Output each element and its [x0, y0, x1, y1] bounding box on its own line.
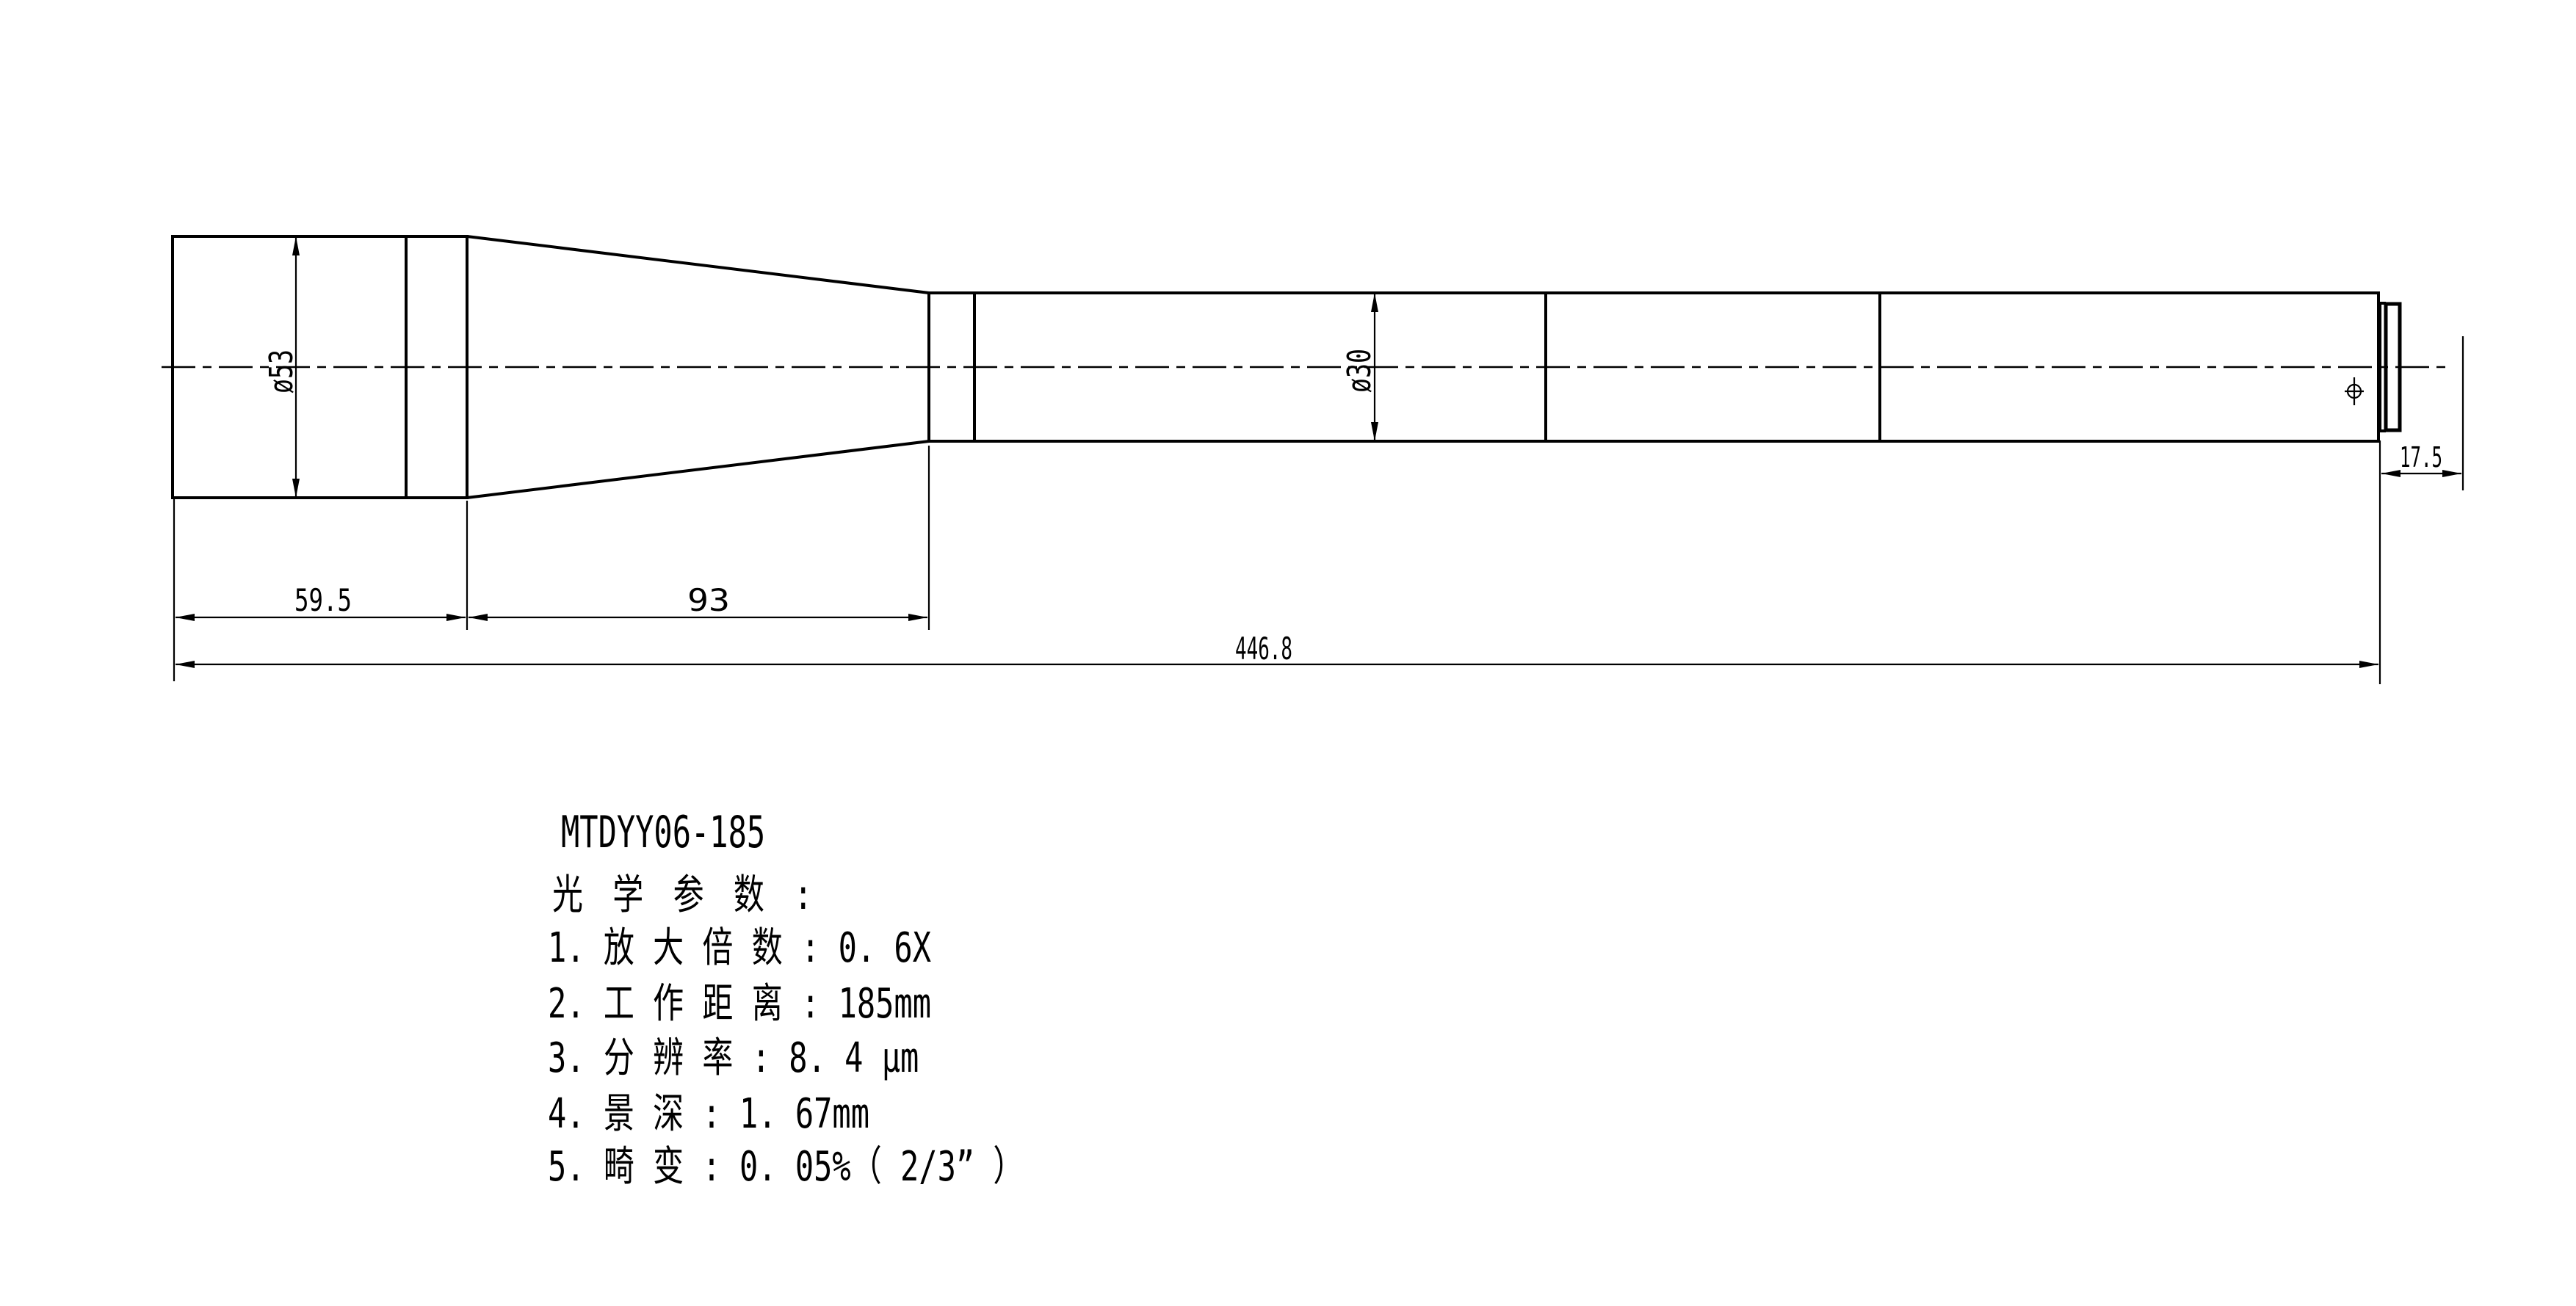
arrowhead — [468, 614, 488, 621]
arrowhead — [1371, 293, 1378, 312]
dimension-labels: ø53 ø30 59.5 93 446.8 17.5 — [263, 349, 2442, 667]
arrowhead — [292, 236, 300, 255]
spec-heading: 光 学 参 数 : — [552, 875, 818, 916]
spec-line-resolution: 3. 分 辨 率 : 8. 4 μm — [548, 1038, 919, 1079]
spec-line-magnification: 1. 放 大 倍 数 : 0. 6X — [548, 928, 931, 969]
dim-label-front-diameter: ø53 — [263, 349, 300, 393]
arrowhead — [2442, 470, 2461, 477]
lens-outline-drawing: ø53 ø30 59.5 93 446.8 17.5 — [0, 0, 2576, 1306]
arrowhead — [292, 479, 300, 498]
arrowhead — [176, 614, 195, 621]
cone-bottom-edge — [467, 441, 929, 498]
spec-line-working-distance: 2. 工 作 距 离 : 185mm — [548, 984, 931, 1025]
extension-lines — [174, 336, 2463, 684]
part-number: MTDYY06-185 — [561, 810, 765, 855]
arrowhead — [2381, 470, 2400, 477]
spec-line-distortion: 5. 畸 变 : 0. 05%（ 2/3” ） — [548, 1147, 1024, 1188]
arrowhead — [2359, 661, 2378, 668]
dim-label-rear-flange-offset: 17.5 — [2400, 441, 2442, 474]
cone-top-edge — [467, 236, 929, 293]
position-target-symbol — [2345, 377, 2364, 405]
arrowhead — [176, 661, 195, 668]
drawing-canvas: ø53 ø30 59.5 93 446.8 17.5 MTDYY06-185 光… — [0, 0, 2576, 1306]
dim-label-overall-length: 446.8 — [1235, 631, 1292, 667]
arrowhead — [908, 614, 927, 621]
dim-label-tube-diameter: ø30 — [1341, 349, 1378, 393]
dimension-lines — [176, 236, 2461, 668]
spec-line-depth-of-field: 4. 景 深 : 1. 67mm — [548, 1094, 869, 1135]
arrowhead — [446, 614, 466, 621]
arrowhead — [1371, 422, 1378, 441]
dim-label-front-length: 59.5 — [294, 582, 352, 618]
dim-label-cone-length: 93 — [687, 582, 730, 618]
